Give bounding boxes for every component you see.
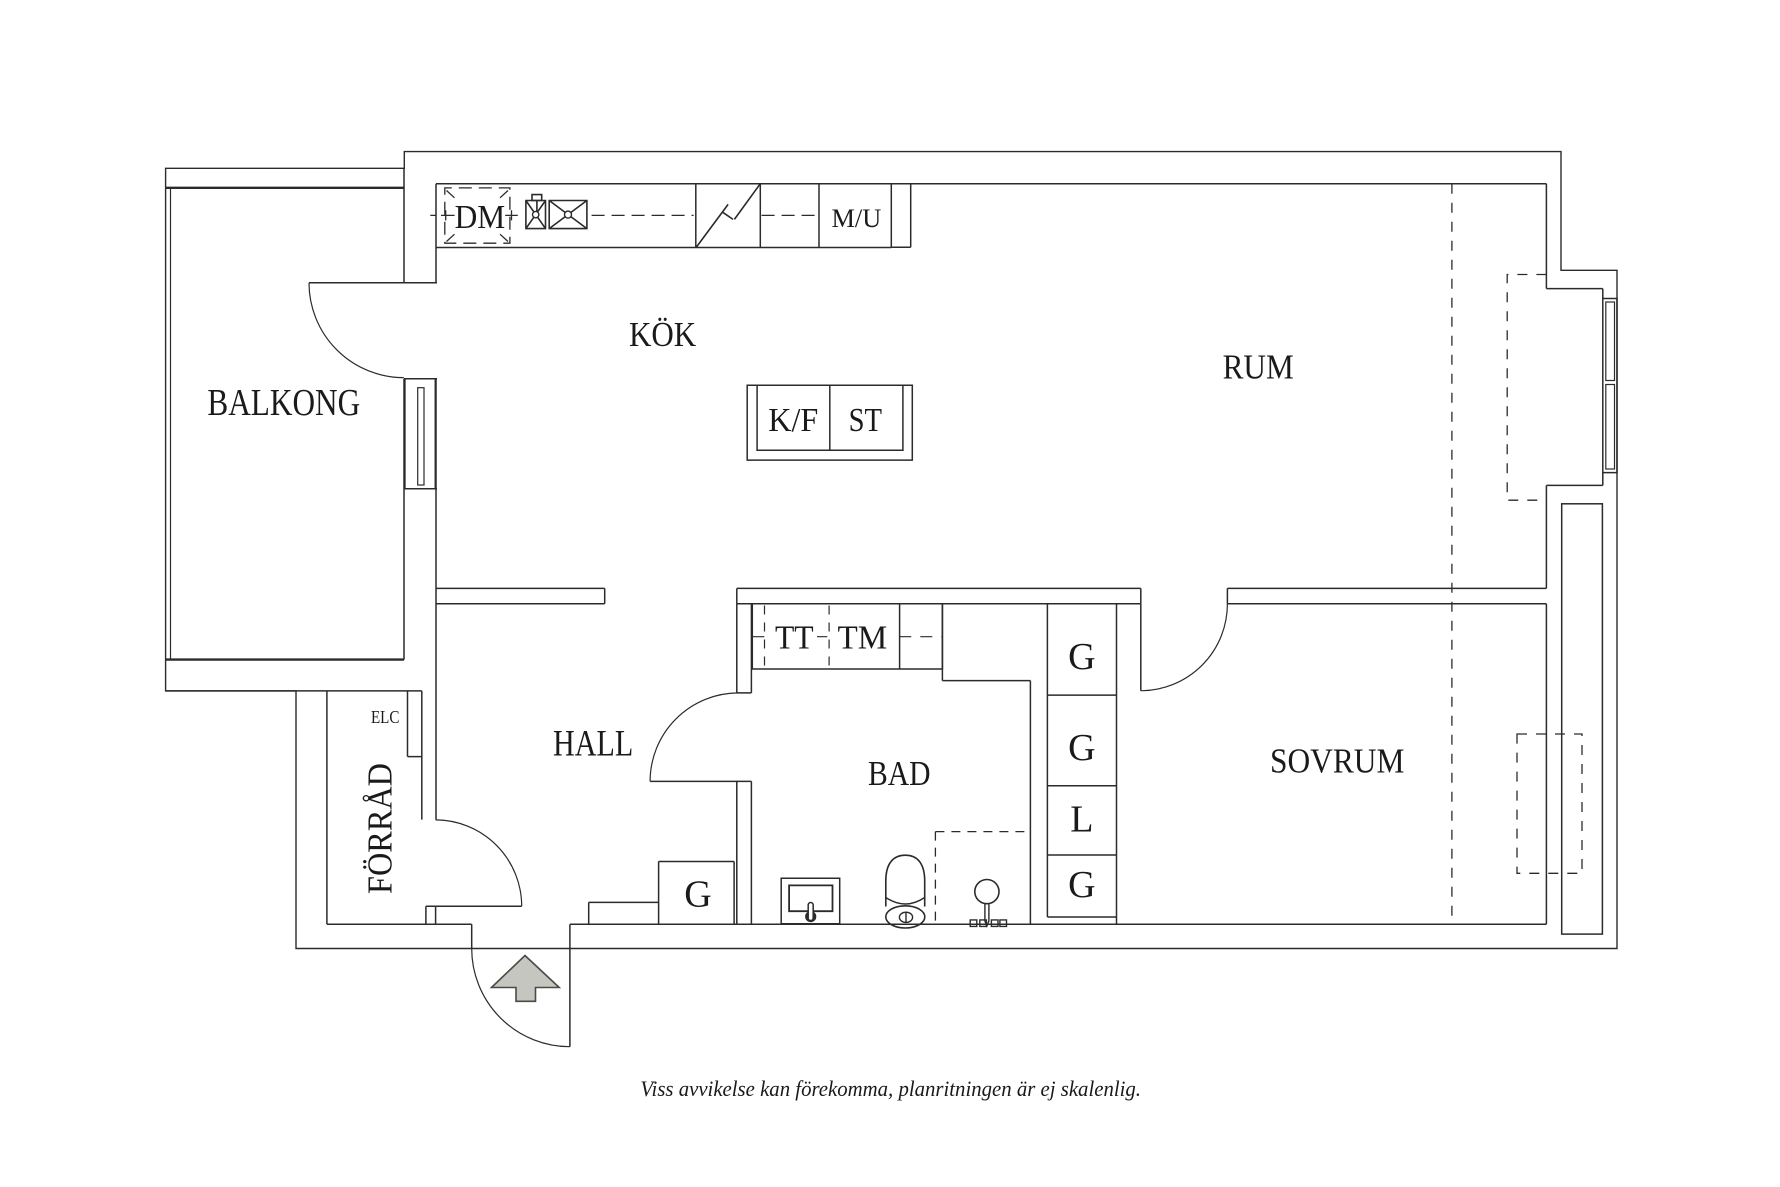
- svg-text:G: G: [1068, 727, 1095, 769]
- svg-text:TM: TM: [838, 619, 888, 656]
- svg-text:BALKONG: BALKONG: [207, 382, 360, 424]
- svg-text:KÖK: KÖK: [629, 315, 696, 354]
- svg-text:Viss avvikelse kan förekomma,: Viss avvikelse kan förekomma, planritnin…: [640, 1076, 1141, 1101]
- svg-text:FÖRRÅD: FÖRRÅD: [361, 763, 400, 894]
- svg-text:BAD: BAD: [868, 754, 931, 793]
- svg-text:ST: ST: [849, 402, 883, 439]
- svg-text:SOVRUM: SOVRUM: [1270, 741, 1404, 780]
- svg-text:G: G: [1068, 864, 1095, 906]
- svg-text:G: G: [684, 874, 711, 916]
- svg-text:M/U: M/U: [832, 204, 882, 233]
- svg-text:L: L: [1070, 799, 1093, 841]
- svg-text:RUM: RUM: [1223, 348, 1294, 387]
- svg-text:ELC: ELC: [371, 707, 399, 727]
- svg-text:K/F: K/F: [768, 402, 818, 439]
- svg-text:DM: DM: [455, 199, 506, 236]
- svg-text:G: G: [1068, 636, 1095, 678]
- svg-text:TT: TT: [775, 619, 814, 656]
- svg-text:HALL: HALL: [553, 723, 633, 764]
